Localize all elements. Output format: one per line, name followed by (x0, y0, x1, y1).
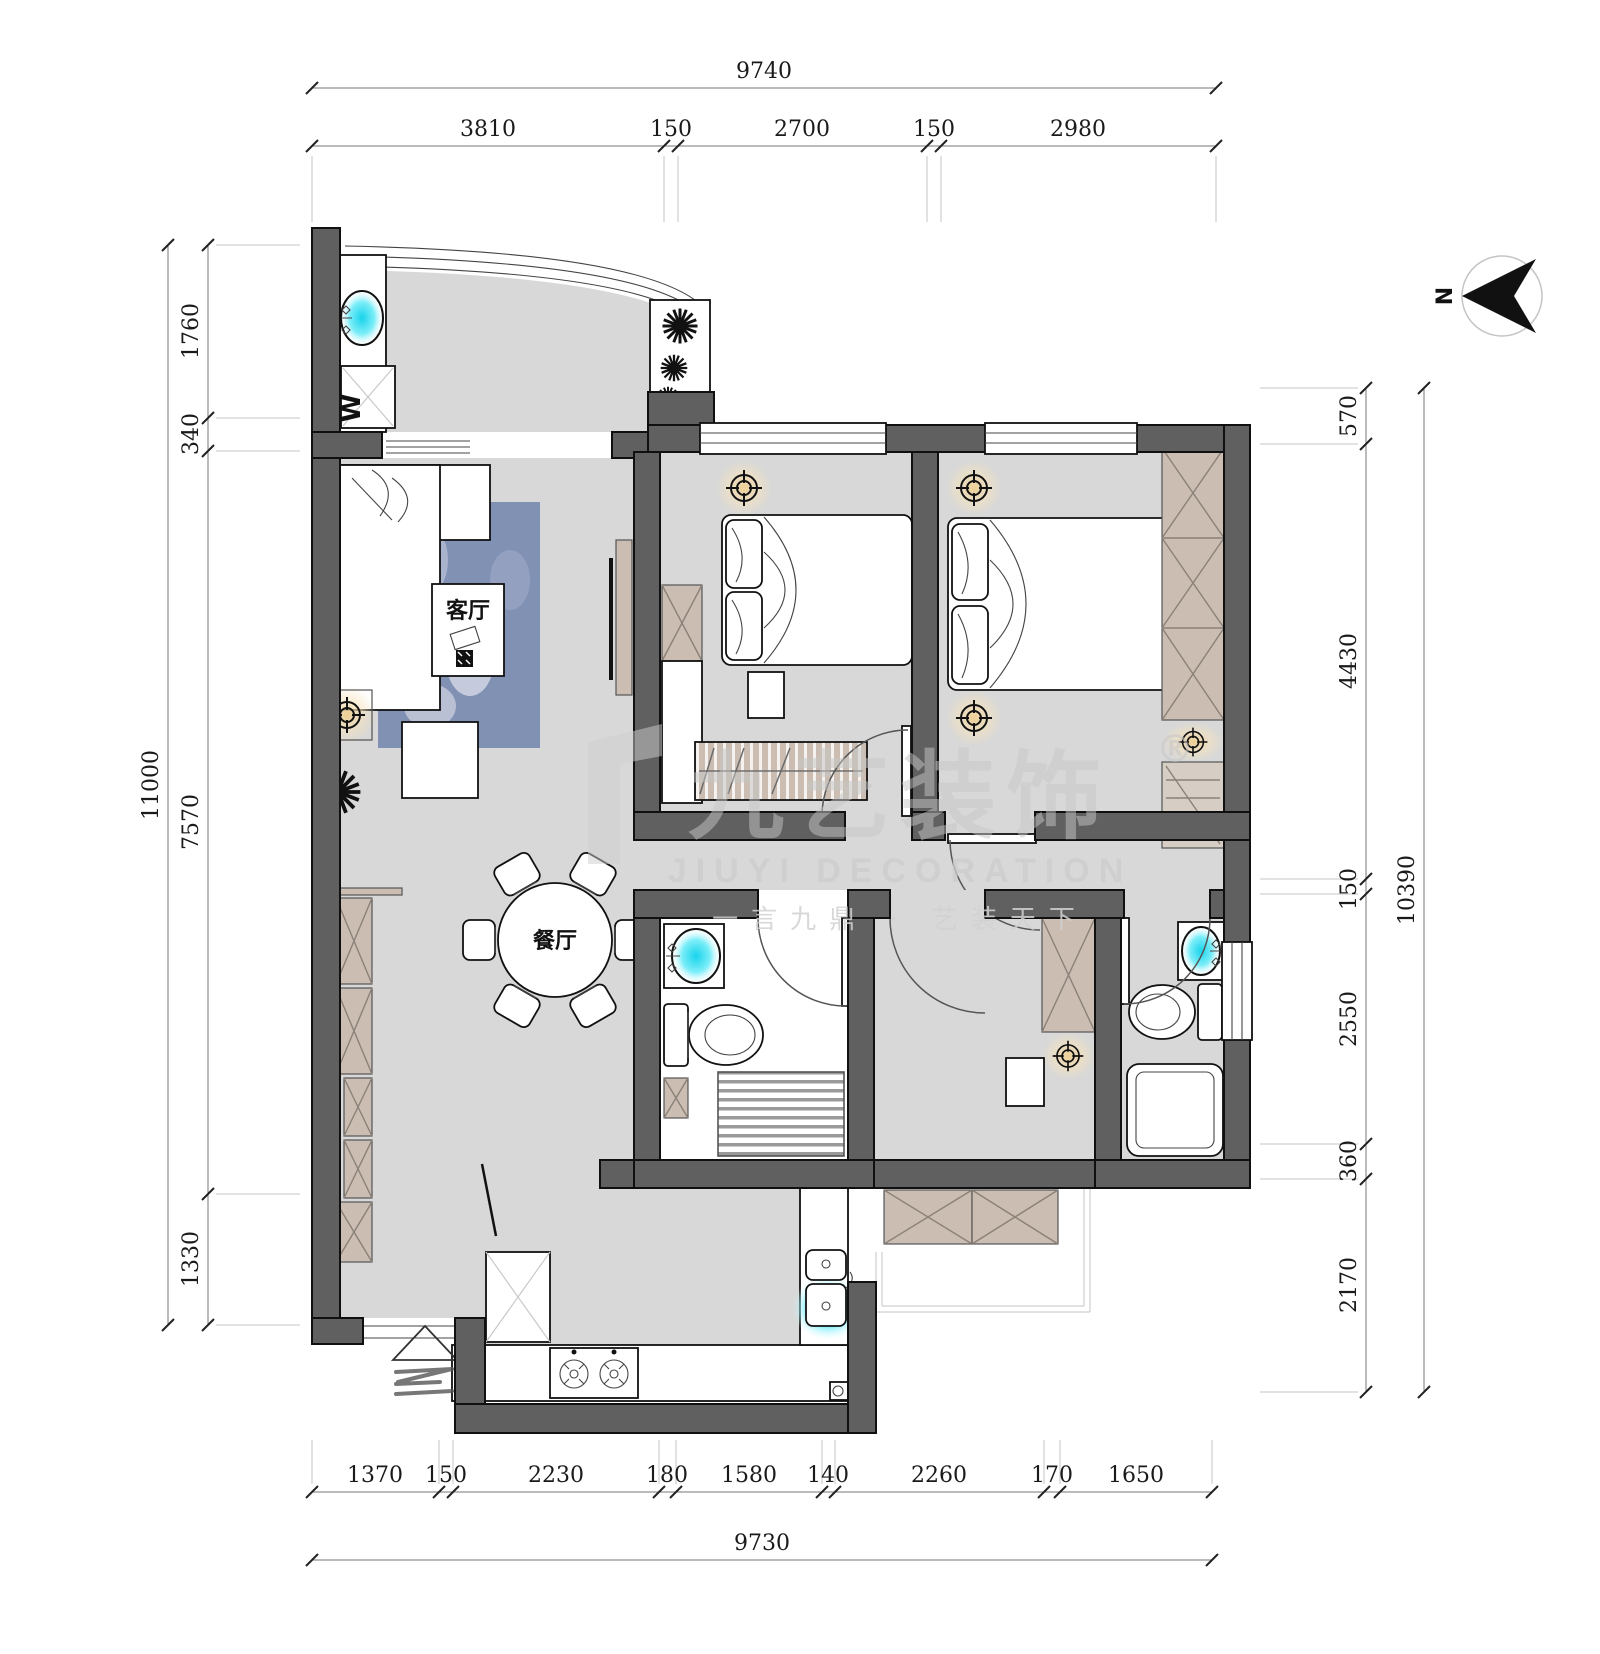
floor-plan-canvas: W 客厅 (0, 0, 1600, 1654)
dim-label: 2230 (528, 1463, 584, 1488)
watermark-brand-en: JIUYI DECORATION (668, 852, 1133, 890)
study-wardrobe (1042, 918, 1095, 1032)
balcony-door-track (386, 441, 470, 453)
dim-label: 1650 (1108, 1463, 1164, 1488)
dimension-right: 570 4430 150 2550 360 2170 10390 (1337, 382, 1430, 1398)
nightstand-glow (946, 690, 1002, 746)
dim-label: 3810 (460, 117, 516, 142)
dimension-top: 9740 3810 150 2700 150 2980 (306, 59, 1222, 152)
study-light-glow (1042, 1032, 1095, 1080)
dim-label: 340 (179, 413, 204, 455)
shower-mat (718, 1072, 844, 1156)
dim-label: 570 (1337, 395, 1362, 437)
dim-label: 2700 (774, 117, 830, 142)
washer-label: W (337, 394, 367, 423)
side-table (402, 722, 478, 798)
washing-machine: W (337, 366, 395, 428)
living-room-label: 客厅 (446, 598, 490, 624)
nightstand-glow (716, 460, 772, 516)
tv-cabinet (616, 540, 632, 695)
study-balcony (876, 1188, 1090, 1312)
dimension-bottom: 1370 150 2230 180 1580 140 2260 170 1650… (306, 1463, 1218, 1566)
dim-label: 150 (425, 1463, 467, 1488)
window-bathroom-right (1222, 942, 1252, 1040)
dim-left-total: 11000 (139, 750, 164, 820)
coffee-table: 客厅 (432, 584, 504, 676)
dim-label: 1760 (179, 303, 204, 359)
dim-label: 150 (650, 117, 692, 142)
entry-arrow-icon (393, 1326, 457, 1360)
compass-north-label: N (1433, 287, 1458, 305)
counter-bottom (452, 1345, 848, 1401)
watermark-tagline: 一言九鼎 · 艺装天下 (712, 905, 1088, 935)
study-desk (1006, 1058, 1044, 1106)
dim-label: 170 (1031, 1463, 1073, 1488)
dim-label: 1580 (721, 1463, 777, 1488)
bed-2 (948, 518, 1176, 690)
dim-label: 360 (1337, 1140, 1362, 1182)
watermark-registered: ® (1156, 727, 1194, 771)
dim-label: 150 (1337, 868, 1362, 910)
dim-label: 2980 (1050, 117, 1106, 142)
dim-top-total: 9740 (736, 59, 792, 84)
dimension-left: 11000 1760 340 7570 1330 (139, 239, 214, 1331)
tv (609, 558, 613, 680)
wardrobe-2 (1162, 448, 1224, 720)
bed-1 (722, 515, 912, 665)
shelf (336, 888, 402, 895)
dim-label: 4430 (1337, 633, 1362, 689)
dim-label: 2550 (1337, 991, 1362, 1047)
dim-label: 1330 (179, 1231, 204, 1287)
window-bedroom2 (985, 423, 1137, 454)
compass: N (1433, 256, 1542, 336)
dim-label: 150 (913, 117, 955, 142)
dim-label: 140 (807, 1463, 849, 1488)
dim-label: 1370 (347, 1463, 403, 1488)
nightstand-glow (946, 460, 1002, 516)
dim-label: 2260 (911, 1463, 967, 1488)
desk-1 (748, 672, 784, 718)
toilet (664, 1004, 763, 1066)
stove (550, 1348, 638, 1398)
watermark-brand-cn: 九艺装饰 (688, 741, 1112, 853)
dim-right-total: 10390 (1395, 855, 1420, 925)
dim-bottom-total: 9730 (734, 1531, 790, 1556)
floor-plan-page: W 客厅 (0, 0, 1600, 1654)
window-bedroom1 (700, 423, 886, 454)
dim-label: 7570 (179, 794, 204, 850)
entry (363, 1326, 457, 1394)
dim-label: 180 (646, 1463, 688, 1488)
bathtub (1127, 1064, 1223, 1156)
dining-room-label: 餐厅 (533, 929, 577, 954)
dim-label: 2170 (1337, 1257, 1362, 1313)
toilet (1129, 984, 1222, 1040)
